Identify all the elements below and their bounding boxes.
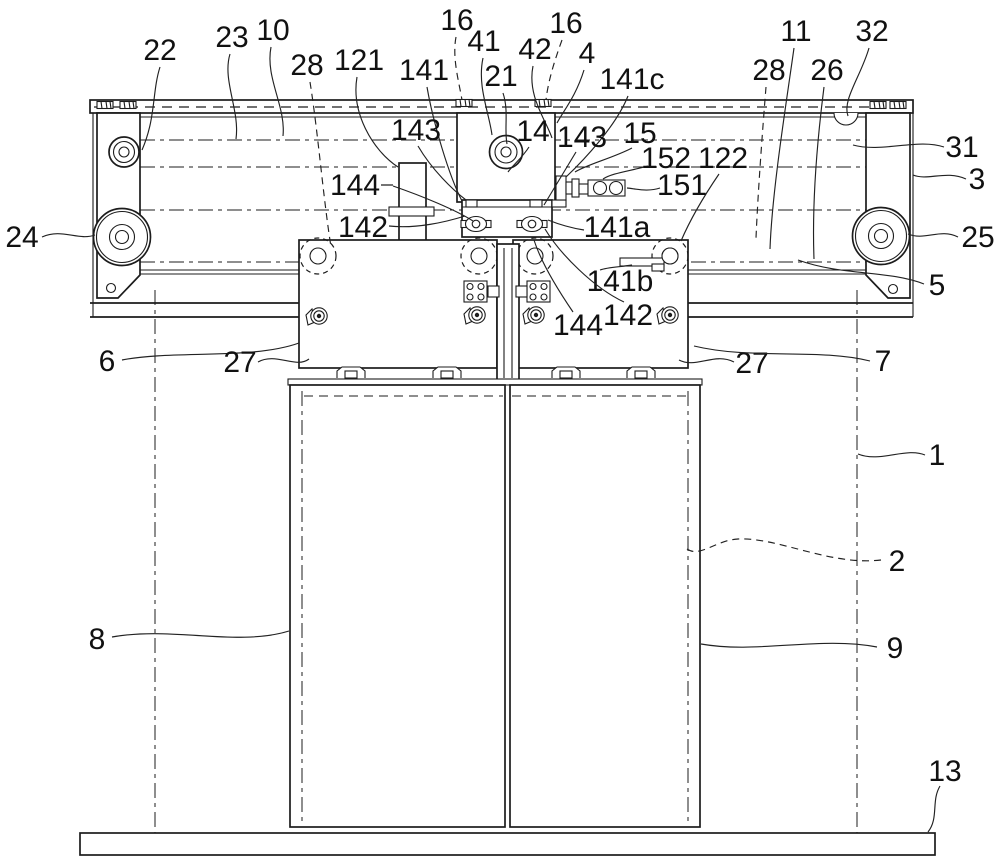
ref-label-9-leader [701, 643, 877, 647]
ref-label-27: 27 [223, 346, 256, 379]
hanger-foot [627, 367, 655, 378]
ref-label-144-2: 144 [553, 309, 603, 342]
ref-label-141b: 141b [587, 265, 654, 298]
latch-pin-collar [572, 179, 579, 197]
ref-label-26: 26 [810, 54, 843, 87]
hanger-foot [552, 367, 580, 378]
right-end-bracket [866, 113, 910, 298]
bracket-141-tab [466, 200, 477, 207]
ref-label-144: 144 [330, 169, 380, 202]
beam-tab [890, 102, 906, 109]
hanger-foot [433, 367, 461, 378]
ref-label-6: 6 [99, 345, 116, 378]
ref-label-141a: 141a [584, 211, 651, 244]
ref-label-3-leader [913, 175, 966, 179]
connecting-bracket-141 [461, 200, 552, 237]
lock-latch-device [552, 176, 625, 207]
ref-label-13: 13 [928, 755, 961, 788]
ref-label-23-leader [228, 54, 237, 139]
ref-label-151-leader [627, 188, 660, 190]
latch-pin [566, 182, 572, 194]
ref-label-9: 9 [887, 632, 904, 665]
latch-pin-shaft [579, 184, 588, 194]
ref-label-24-leader [42, 234, 95, 237]
ref-label-28-2: 28 [752, 54, 785, 87]
figure-canvas: 2223102812114116412142164141c14314143151… [0, 0, 1000, 862]
bracket-141-tab [530, 200, 542, 207]
coupling-channel [497, 244, 519, 380]
ref-label-42: 42 [518, 33, 551, 66]
ref-label-6-leader [122, 343, 299, 360]
center-pulley-hub [501, 147, 511, 157]
door-top-band [288, 379, 702, 385]
ref-label-27-2: 27 [735, 347, 768, 380]
beam-tab [97, 102, 113, 109]
ref-label-5: 5 [929, 269, 946, 302]
ref-label-32: 32 [855, 15, 888, 48]
ref-label-16-2: 16 [549, 7, 582, 40]
interlock-arm-step [652, 264, 664, 271]
latch-roller-151 [610, 182, 623, 195]
ref-label-7: 7 [875, 345, 892, 378]
ref-label-23: 23 [215, 21, 248, 54]
beam-tab [120, 102, 136, 109]
ref-label-22: 22 [143, 34, 176, 67]
ref-label-1-leader [858, 453, 925, 457]
ref-label-1: 1 [929, 439, 946, 472]
right-door-panel [510, 385, 700, 827]
patent-figure: 2223102812114116412142164141c14314143151… [0, 0, 1000, 862]
beam-tab [870, 102, 886, 109]
ref-label-24: 24 [5, 221, 38, 254]
ref-label-10: 10 [256, 14, 289, 47]
clamp-post-crossbar [389, 207, 434, 216]
right-return-roller [853, 208, 910, 265]
left-tension-pulley [109, 137, 139, 167]
coupling-clamp-left [464, 281, 487, 302]
coupling-clamp-right [527, 281, 550, 302]
latch-roller-152 [594, 182, 607, 195]
ref-label-142: 142 [338, 211, 388, 244]
sill-plate [80, 833, 935, 855]
left-bracket-hole [107, 284, 116, 293]
ref-label-2-leader [687, 539, 881, 561]
ref-label-14: 14 [516, 115, 549, 148]
door-panels [288, 379, 702, 827]
ref-label-2: 2 [889, 545, 906, 578]
latch-flange [556, 176, 566, 200]
ref-label-141a-leader [548, 220, 584, 230]
ref-label-16-leader [455, 37, 462, 100]
ref-label-141c: 141c [599, 63, 664, 96]
ref-label-28: 28 [290, 49, 323, 82]
ref-label-142-2: 142 [603, 299, 653, 332]
left-hanger-plate [299, 240, 497, 368]
ref-label-31: 31 [945, 131, 978, 164]
ref-label-13-leader [928, 786, 940, 832]
ref-label-143-2: 143 [557, 121, 607, 154]
ref-label-25: 25 [961, 221, 994, 254]
hanger-roller-hub [662, 248, 678, 264]
latch-arm-base [552, 200, 566, 207]
ref-label-10-leader [270, 47, 283, 136]
ref-label-8-leader [112, 631, 289, 637]
ref-label-143: 143 [391, 114, 441, 147]
left-door-panel [290, 385, 505, 827]
coupling-link [488, 286, 499, 297]
ref-label-141: 141 [399, 54, 449, 87]
left-return-roller [94, 209, 151, 266]
ref-label-4-leader [557, 70, 584, 123]
beam-notch [834, 113, 858, 125]
ref-label-121: 121 [334, 44, 384, 77]
right-bracket-hole [889, 285, 898, 294]
ref-label-3: 3 [969, 163, 986, 196]
ref-label-21: 21 [484, 60, 517, 93]
ref-label-41: 41 [467, 25, 500, 58]
ref-label-8: 8 [89, 623, 106, 656]
coupling-link [516, 286, 527, 297]
ref-label-11: 11 [780, 15, 811, 48]
ref-label-25-leader [908, 234, 958, 237]
beam-tab [456, 100, 472, 107]
ref-label-4: 4 [579, 37, 596, 70]
hanger-foot [337, 367, 365, 378]
ref-label-151: 151 [657, 169, 707, 202]
